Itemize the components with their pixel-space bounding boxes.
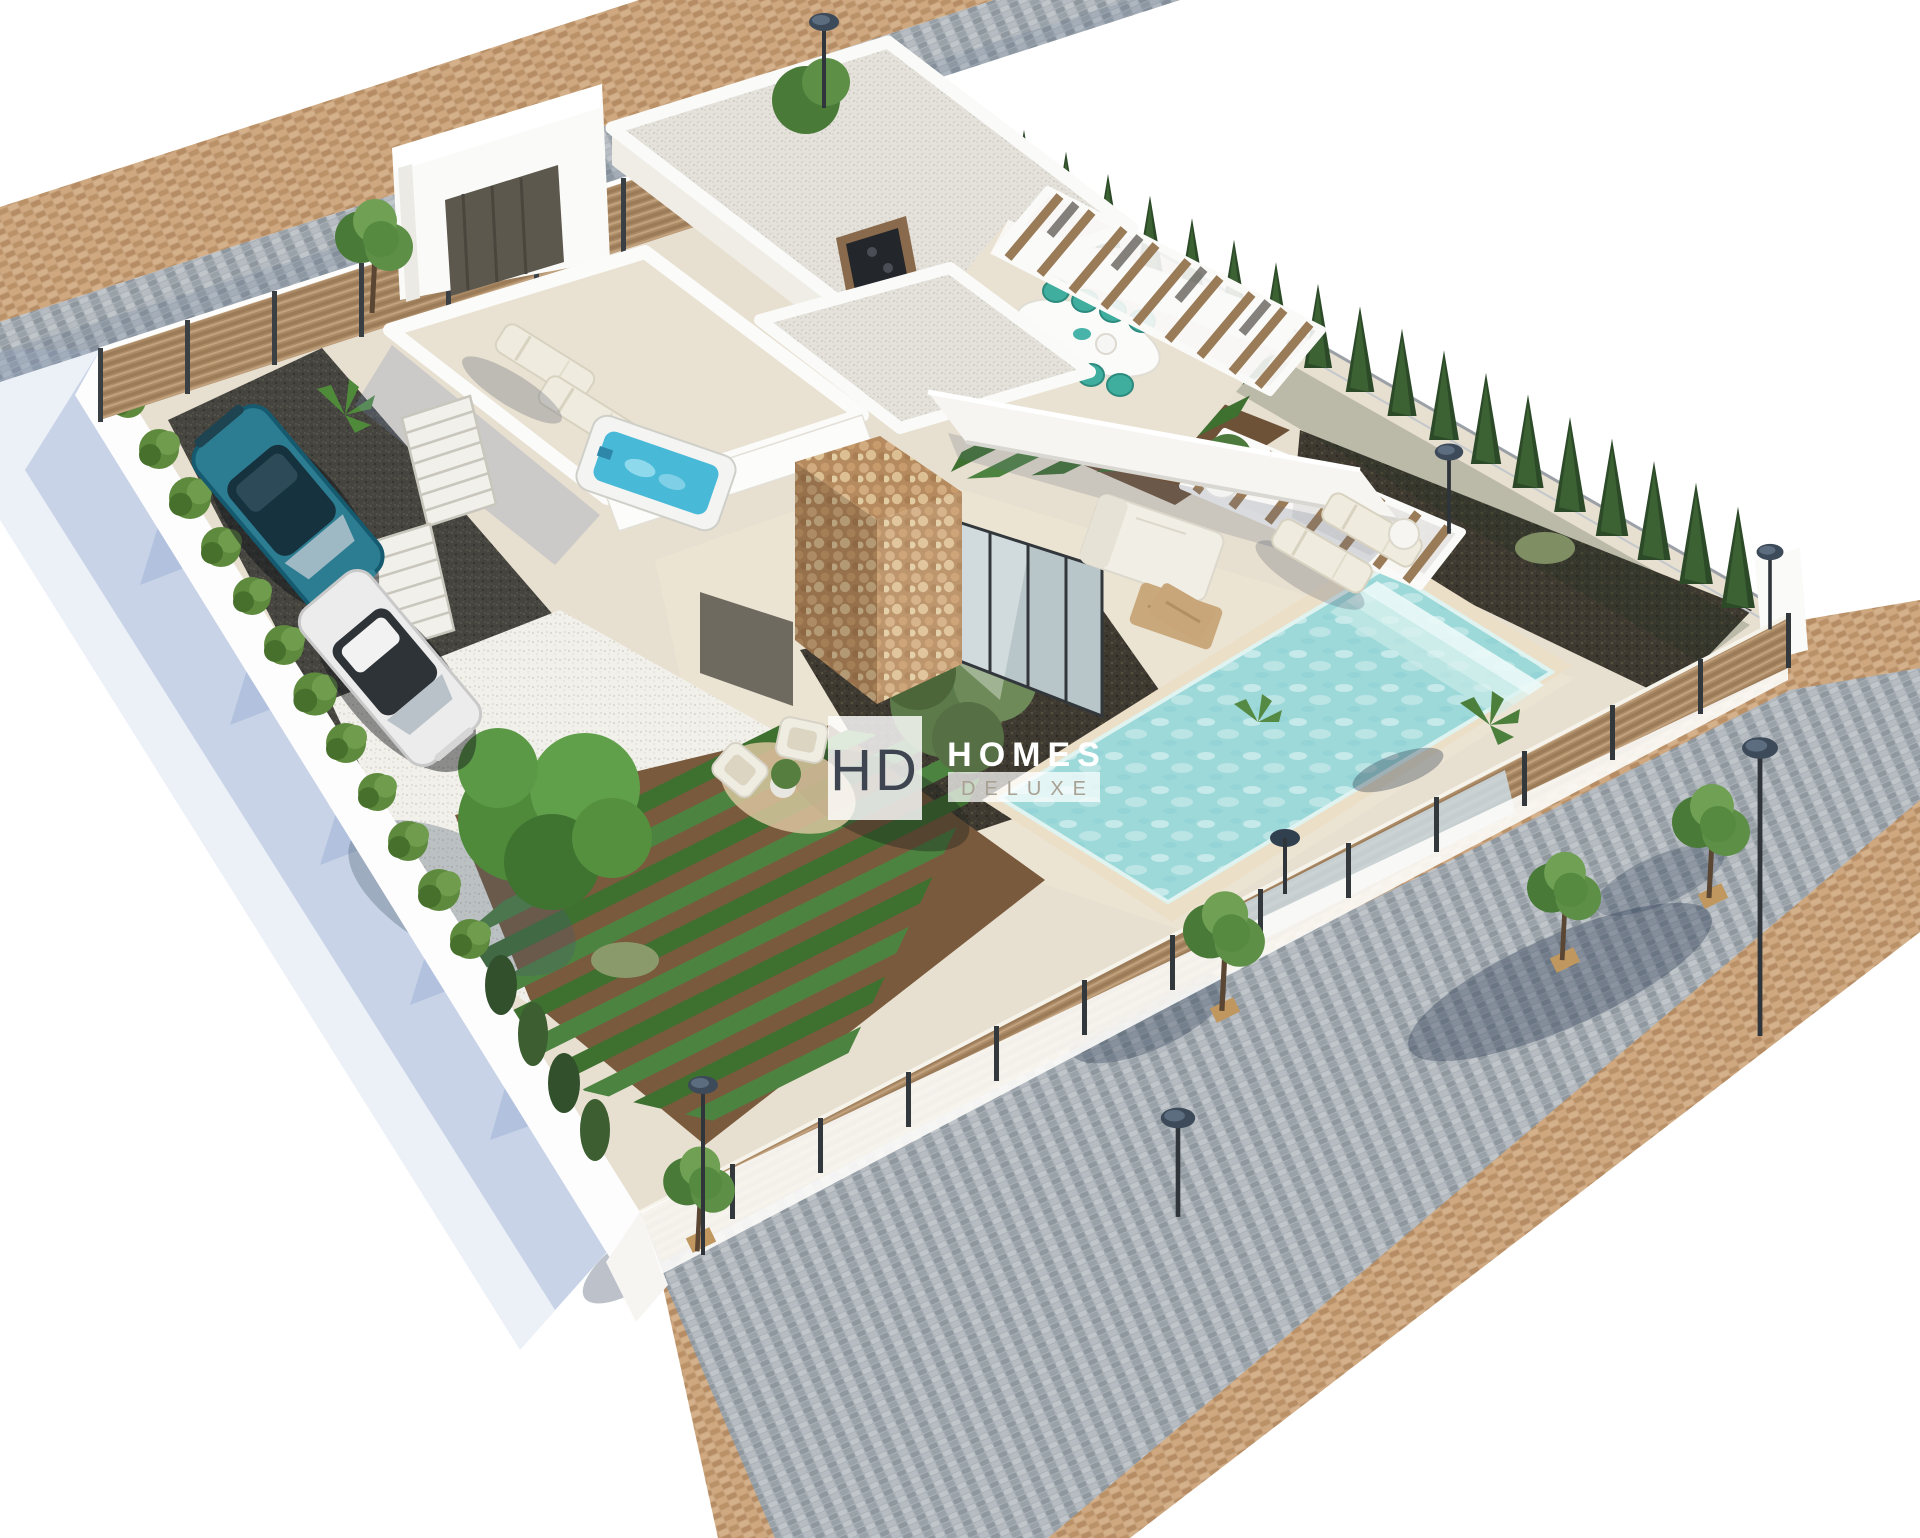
watermark-initials: HD <box>830 738 920 803</box>
ornamental-grass <box>591 942 659 978</box>
pool-side-table <box>1389 519 1419 549</box>
villa-render: ; <box>0 0 1920 1538</box>
villa-aerial-scene: ; <box>0 0 1920 1538</box>
watermark-subtitle: DELUXE <box>961 778 1095 800</box>
watermark-title: HOMES <box>947 736 1107 774</box>
